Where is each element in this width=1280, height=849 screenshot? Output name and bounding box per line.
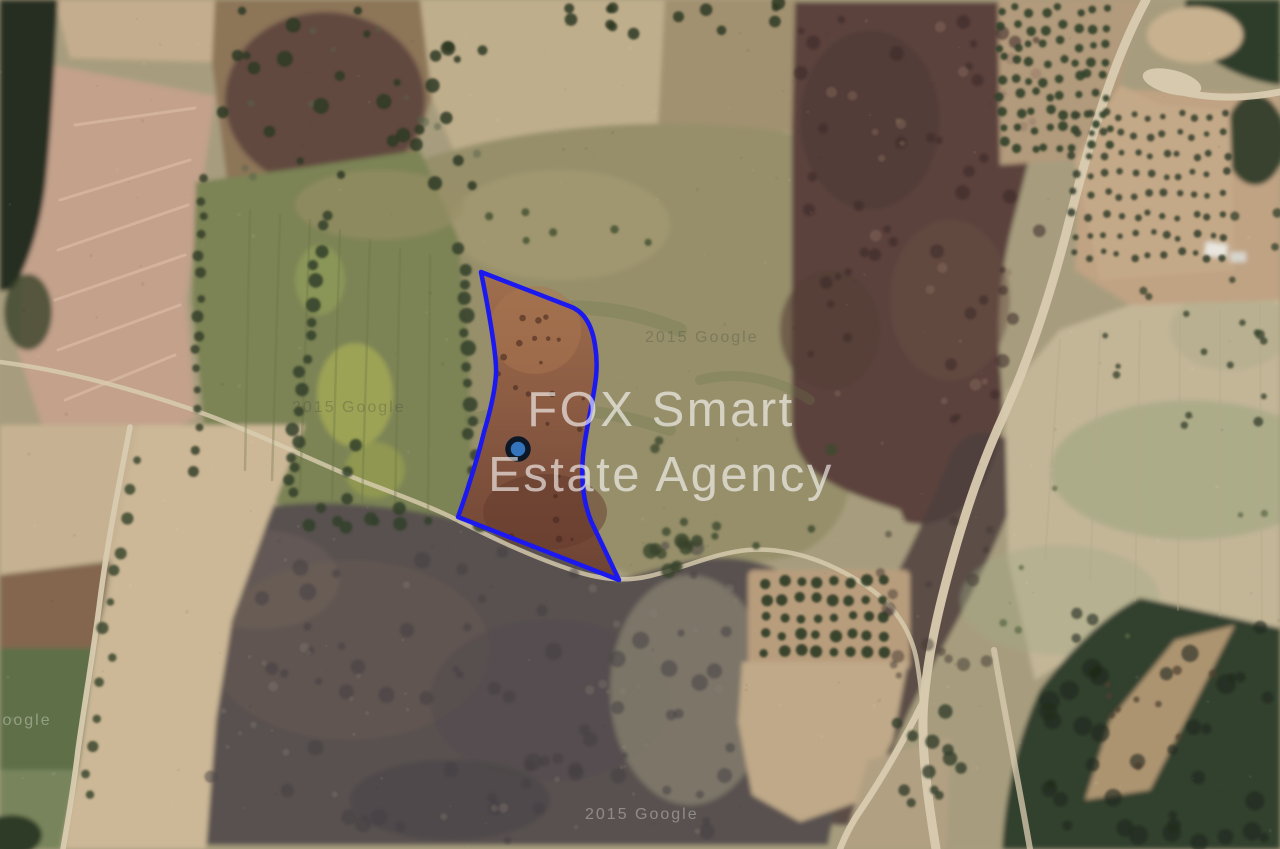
satellite-map-view[interactable]: FOX Smart Estate Agency 2015 Google 2015… — [0, 0, 1280, 849]
location-marker[interactable] — [508, 439, 528, 459]
terrain-imagery — [0, 0, 1280, 849]
